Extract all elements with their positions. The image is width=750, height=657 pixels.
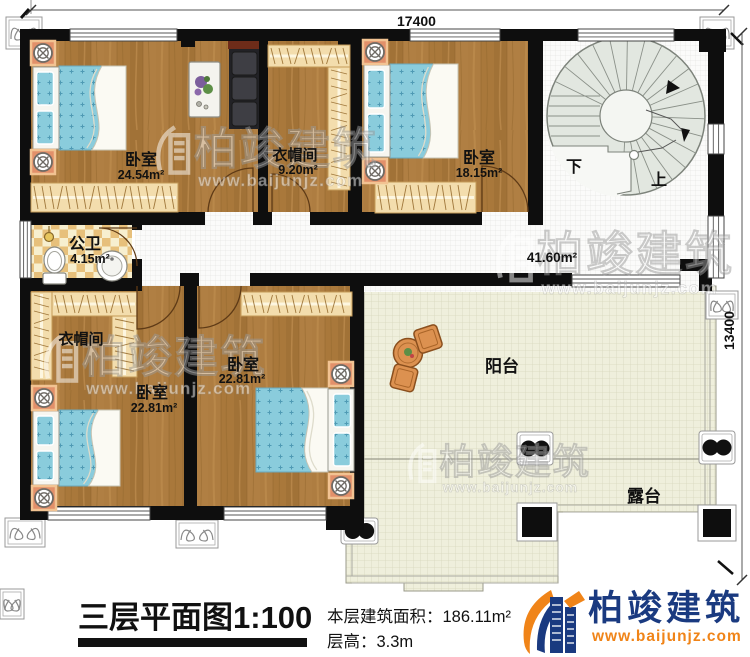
svg-text:本层建筑面积：186.11m²: 本层建筑面积：186.11m² xyxy=(327,607,511,626)
svg-text:衣帽间: 衣帽间 xyxy=(272,146,317,164)
svg-text:www.baijunjz.com: www.baijunjz.com xyxy=(540,278,718,298)
svg-text:17400: 17400 xyxy=(397,13,436,29)
svg-text:三层平面图1:100: 三层平面图1:100 xyxy=(78,600,312,635)
svg-text:上: 上 xyxy=(651,171,667,189)
svg-text:24.54m²: 24.54m² xyxy=(118,168,165,182)
svg-text:柏竣建筑: 柏竣建筑 xyxy=(588,588,744,628)
svg-text:卧室: 卧室 xyxy=(463,148,495,167)
svg-text:41.60m²: 41.60m² xyxy=(527,250,578,265)
svg-text:阳台: 阳台 xyxy=(485,356,519,376)
svg-text:层高：3.3m: 层高：3.3m xyxy=(327,632,413,651)
svg-text:公卫: 公卫 xyxy=(69,235,101,253)
svg-text:4.15m²: 4.15m² xyxy=(70,252,110,266)
svg-text:www.baijunjz.com: www.baijunjz.com xyxy=(591,628,742,645)
svg-text:18.15m²: 18.15m² xyxy=(456,166,503,180)
svg-text:www.baijunjz.com: www.baijunjz.com xyxy=(442,480,578,495)
svg-text:22.81m²: 22.81m² xyxy=(219,372,266,386)
svg-text:卧室: 卧室 xyxy=(125,150,157,169)
svg-text:卧室: 卧室 xyxy=(136,383,168,402)
svg-text:下: 下 xyxy=(566,159,582,176)
svg-text:衣帽间: 衣帽间 xyxy=(58,330,103,348)
svg-text:13400: 13400 xyxy=(721,311,737,350)
svg-text:9.20m²: 9.20m² xyxy=(278,163,318,177)
svg-text:22.81m²: 22.81m² xyxy=(131,401,178,415)
svg-text:露台: 露台 xyxy=(627,486,661,506)
svg-text:柏竣建筑: 柏竣建筑 xyxy=(439,441,590,482)
